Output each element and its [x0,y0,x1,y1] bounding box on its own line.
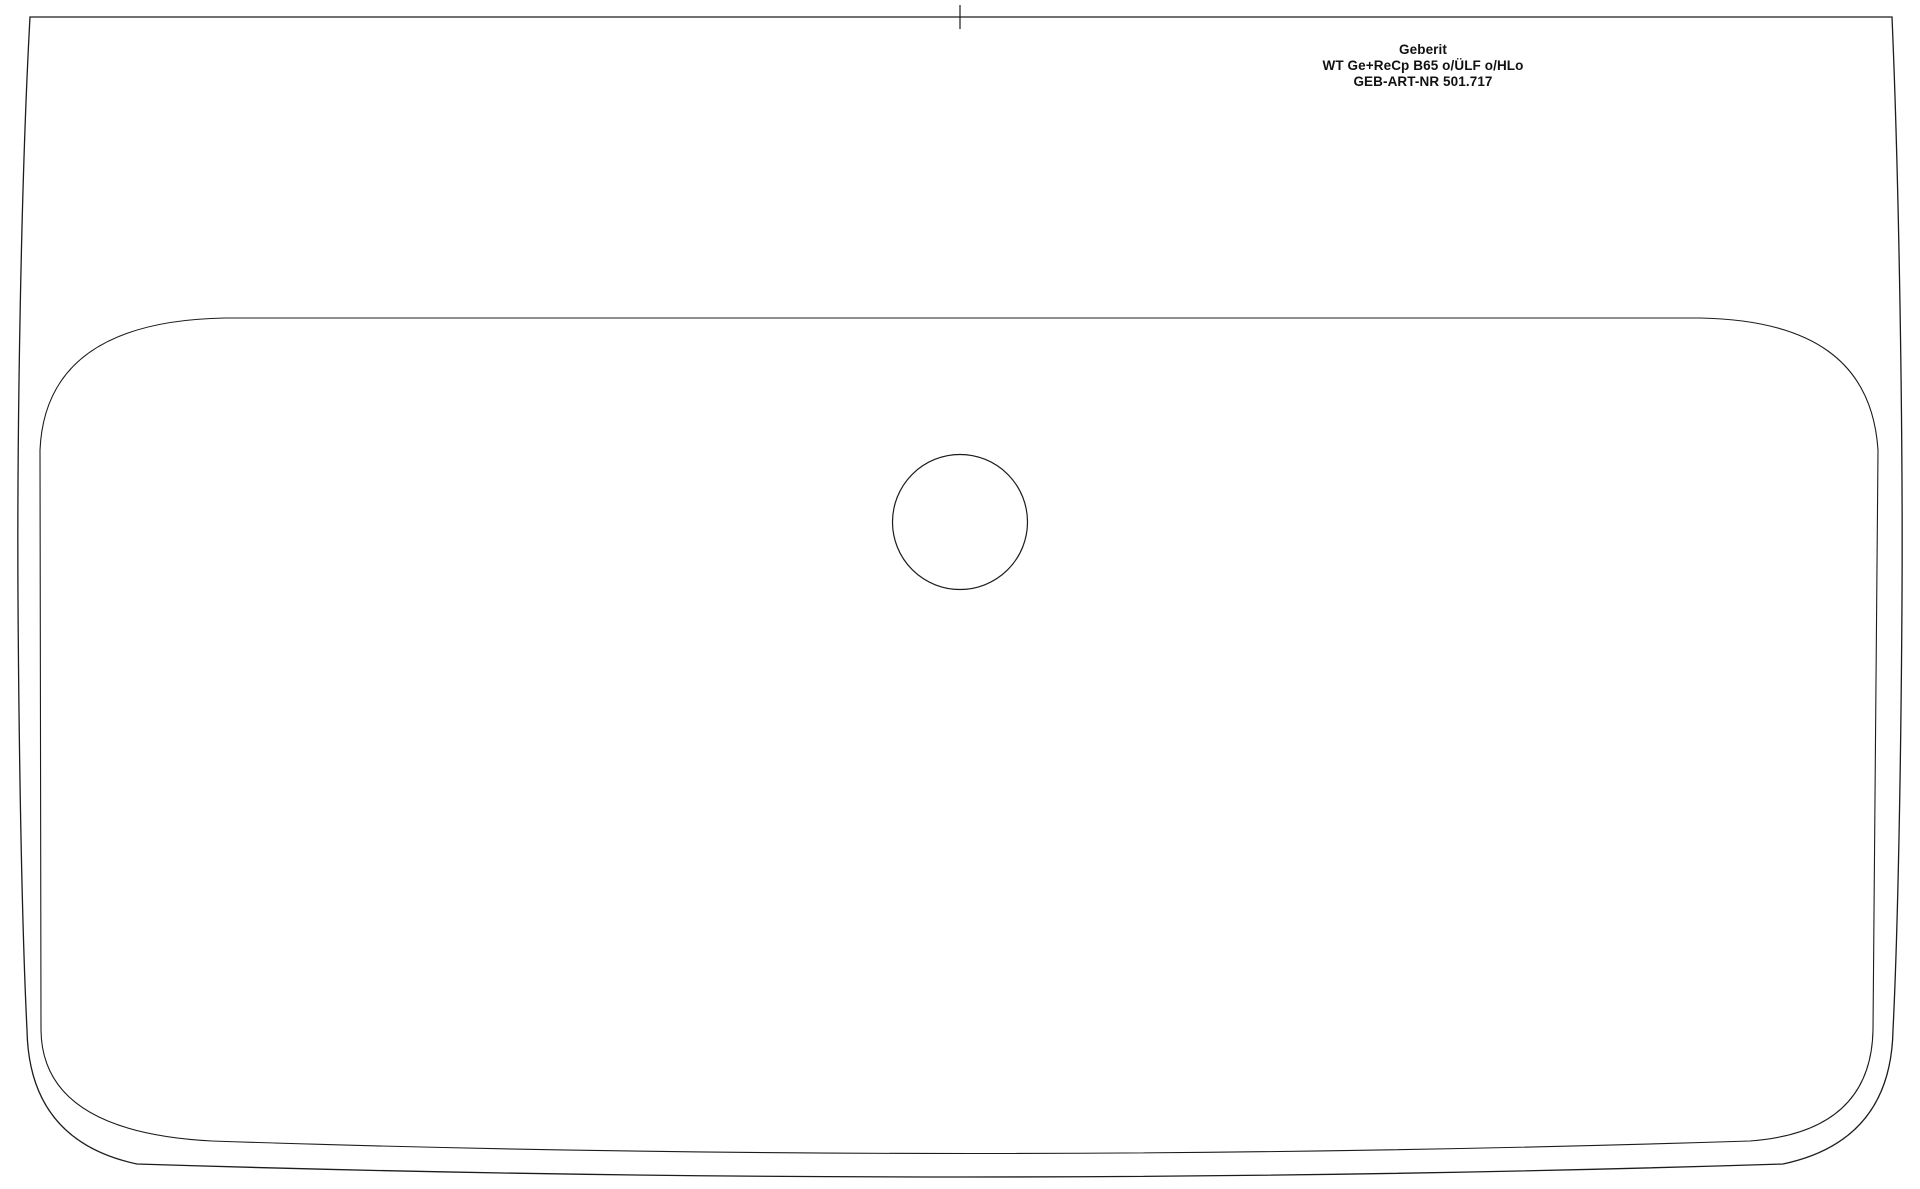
basin-outer-outline [18,17,1902,1177]
product-title-block: Geberit WT Ge+ReCp B65 o/ÜLF o/HLo GEB-A… [1272,42,1574,90]
bowl-rim-outline [40,318,1878,1154]
basin-technical-drawing [0,0,1920,1189]
drawing-canvas: Geberit WT Ge+ReCp B65 o/ÜLF o/HLo GEB-A… [0,0,1920,1189]
drain-hole-circle [893,455,1028,590]
article-number-line: GEB-ART-NR 501.717 [1272,74,1574,90]
product-name-line: WT Ge+ReCp B65 o/ÜLF o/HLo [1272,58,1574,74]
brand-line: Geberit [1272,42,1574,58]
